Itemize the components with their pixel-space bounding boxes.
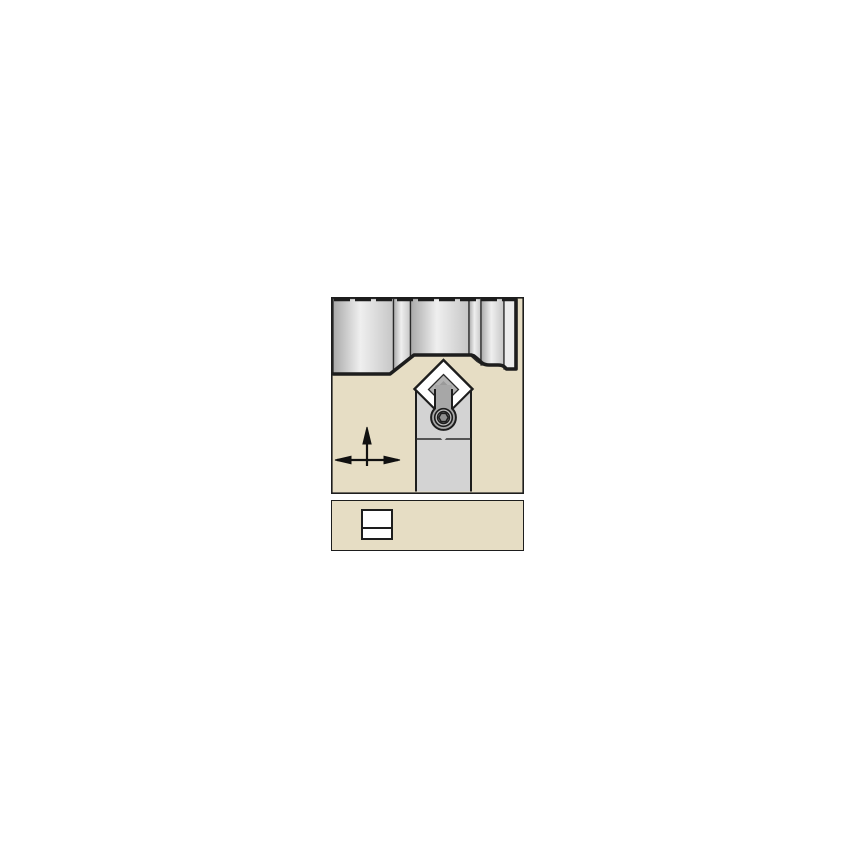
clamp-screw-icon	[435, 409, 453, 427]
workpiece-band	[333, 299, 394, 375]
insert-cross-section-icon	[361, 509, 393, 540]
insert-info-panel	[331, 500, 524, 551]
diagram-canvas	[0, 0, 854, 854]
insert-seat-line	[363, 527, 391, 538]
toolholder-diagram	[331, 297, 524, 494]
workpiece-band	[411, 299, 470, 359]
tool-application-panel	[331, 297, 524, 494]
workpiece-band	[481, 299, 504, 366]
